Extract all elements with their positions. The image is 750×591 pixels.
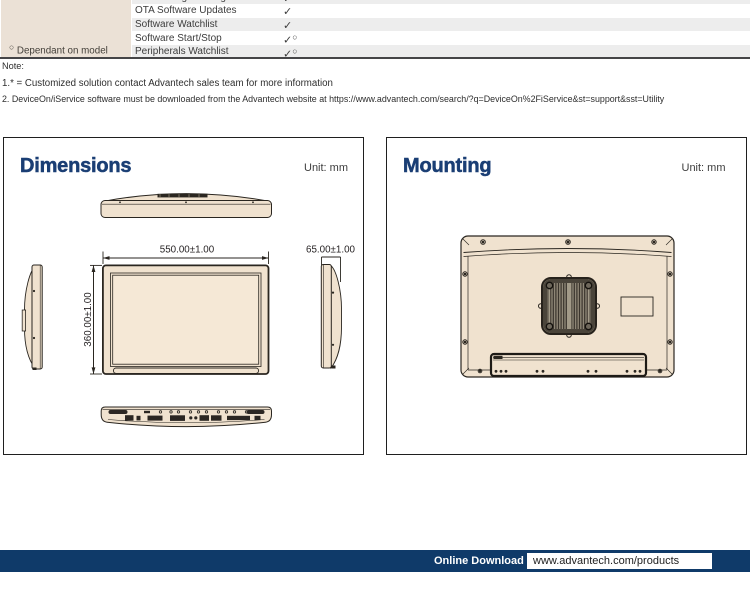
svg-text:360.00±1.00: 360.00±1.00 [83, 292, 94, 347]
svg-text:550.00±1.00: 550.00±1.00 [160, 245, 215, 256]
svg-text:65.00±1.00: 65.00±1.00 [306, 245, 356, 256]
